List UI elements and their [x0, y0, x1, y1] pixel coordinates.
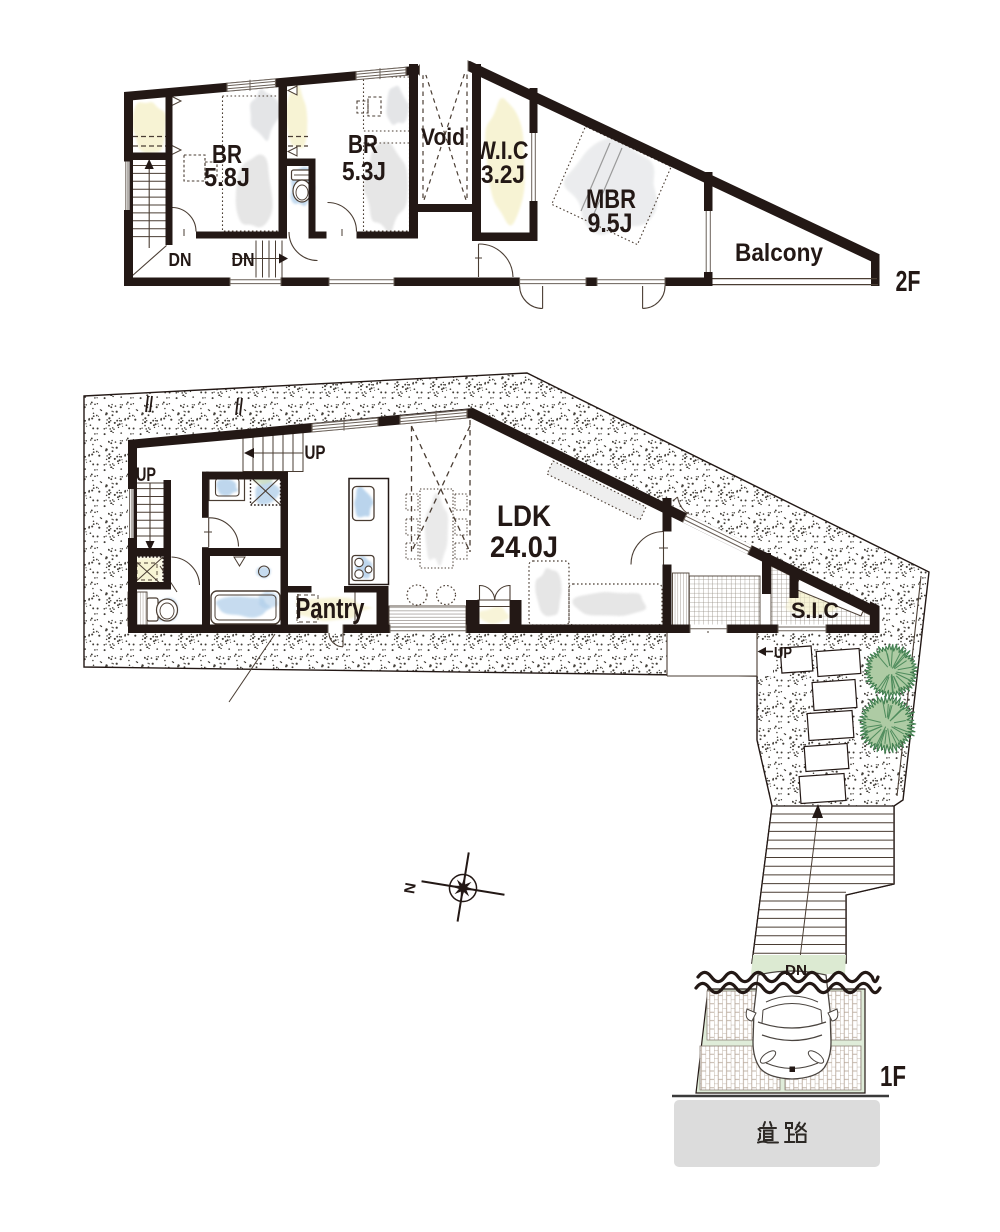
svg-text:S.I.C: S.I.C [791, 598, 839, 623]
svg-text:5.3J: 5.3J [342, 156, 386, 186]
svg-text:Balcony: Balcony [735, 239, 823, 267]
svg-text:Void: Void [421, 124, 465, 151]
svg-text:24.0J: 24.0J [490, 531, 558, 564]
svg-text:2F: 2F [896, 266, 921, 298]
svg-text:UP: UP [136, 465, 156, 486]
svg-text:DN: DN [169, 250, 192, 270]
svg-text:UP: UP [305, 443, 326, 464]
svg-text:BR: BR [348, 129, 378, 159]
svg-text:9.5J: 9.5J [588, 208, 633, 238]
svg-text:5.8J: 5.8J [204, 162, 250, 192]
svg-text:DN: DN [785, 962, 807, 979]
svg-text:3.2J: 3.2J [481, 161, 525, 189]
svg-text:1F: 1F [880, 1061, 906, 1093]
svg-text:UP: UP [774, 645, 792, 662]
svg-text:Pantry: Pantry [296, 593, 365, 625]
svg-text:LDK: LDK [497, 500, 551, 533]
svg-text:DN: DN [232, 250, 255, 270]
